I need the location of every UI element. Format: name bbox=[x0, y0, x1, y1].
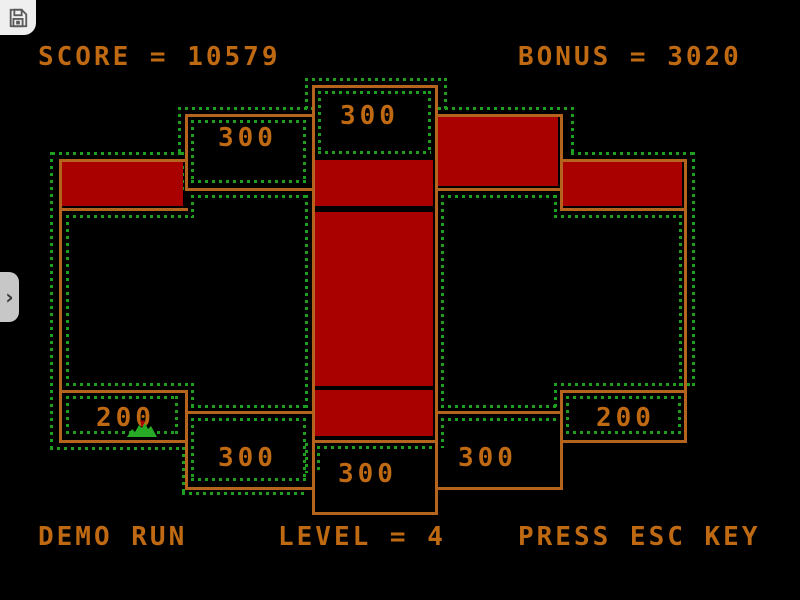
piston-block bbox=[62, 162, 183, 206]
wall-segment bbox=[684, 159, 687, 443]
trail-dotted-line bbox=[571, 152, 695, 155]
wall-segment bbox=[560, 390, 687, 393]
press-esc-text: PRESS ESC KEY bbox=[518, 524, 761, 550]
trail-dotted-line bbox=[566, 396, 678, 399]
trail-dotted-line bbox=[191, 478, 306, 481]
trail-dotted-line bbox=[566, 396, 569, 434]
trail-dotted-line bbox=[191, 383, 194, 408]
wall-segment bbox=[185, 411, 315, 414]
wall-segment bbox=[185, 114, 188, 191]
wall-segment bbox=[560, 440, 687, 443]
chamber-value-label: 300 bbox=[340, 104, 399, 128]
trail-dotted-line bbox=[50, 152, 53, 450]
game-screen: SCORE = 10579 BONUS = 3020 300 300 200 3… bbox=[0, 0, 800, 600]
chamber-value-label: 300 bbox=[458, 446, 517, 470]
trail-dotted-line bbox=[317, 446, 433, 449]
trail-dotted-line bbox=[191, 195, 308, 198]
wall-segment bbox=[435, 487, 563, 490]
wall-segment bbox=[560, 208, 687, 211]
trail-dotted-line bbox=[318, 91, 321, 154]
piston-block bbox=[438, 117, 558, 186]
trail-dotted-line bbox=[191, 180, 306, 183]
trail-dotted-line bbox=[554, 215, 682, 218]
game-board: 300 300 200 300 300 300 200 bbox=[0, 0, 800, 600]
trail-dotted-line bbox=[692, 152, 695, 388]
wall-segment bbox=[59, 390, 188, 393]
trail-dotted-line bbox=[191, 405, 308, 408]
wall-segment bbox=[435, 188, 563, 191]
trail-dotted-line bbox=[317, 446, 320, 472]
floppy-disk-icon bbox=[7, 7, 29, 29]
trail-dotted-line bbox=[679, 215, 682, 386]
trail-dotted-line bbox=[52, 152, 181, 155]
trail-dotted-line bbox=[678, 396, 681, 434]
trail-dotted-line bbox=[441, 418, 556, 421]
trail-dotted-line bbox=[303, 418, 306, 481]
trail-dotted-line bbox=[571, 107, 574, 155]
trail-dotted-line bbox=[441, 418, 444, 448]
piston-block bbox=[315, 390, 433, 436]
demo-run-text: DEMO RUN bbox=[38, 524, 187, 550]
trail-dotted-line bbox=[50, 447, 183, 450]
player-sprite bbox=[127, 420, 157, 438]
wall-segment bbox=[435, 411, 563, 414]
trail-dotted-line bbox=[182, 492, 308, 495]
trail-dotted-line bbox=[305, 195, 308, 408]
trail-dotted-line bbox=[428, 91, 431, 154]
bonus-display: BONUS = 3020 bbox=[518, 44, 742, 70]
piston-block bbox=[563, 162, 682, 206]
wall-segment bbox=[59, 208, 188, 211]
chevron-right-icon: › bbox=[5, 285, 13, 309]
save-button[interactable] bbox=[0, 0, 36, 35]
trail-dotted-line bbox=[66, 215, 69, 386]
trail-dotted-line bbox=[66, 215, 194, 218]
wall-segment bbox=[312, 512, 438, 515]
piston-block bbox=[315, 212, 433, 386]
wall-segment bbox=[185, 487, 315, 490]
trail-dotted-line bbox=[441, 195, 558, 198]
trail-dotted-line bbox=[178, 107, 181, 155]
sidebar-expand-tab[interactable]: › bbox=[0, 272, 19, 322]
wall-segment bbox=[185, 114, 315, 117]
trail-dotted-line bbox=[178, 107, 315, 110]
trail-dotted-line bbox=[66, 396, 178, 399]
trail-dotted-line bbox=[175, 396, 178, 434]
trail-dotted-line bbox=[554, 383, 695, 386]
trail-dotted-line bbox=[441, 195, 444, 408]
trail-dotted-line bbox=[191, 418, 194, 481]
trail-dotted-line bbox=[66, 396, 69, 434]
wall-segment bbox=[312, 85, 438, 88]
piston-block bbox=[315, 160, 433, 206]
chamber-value-label: 300 bbox=[218, 446, 277, 470]
trail-dotted-line bbox=[318, 91, 431, 94]
trail-dotted-line bbox=[318, 151, 431, 154]
trail-dotted-line bbox=[191, 418, 306, 421]
trail-dotted-line bbox=[441, 405, 558, 408]
chamber-value-label: 300 bbox=[338, 462, 397, 486]
trail-dotted-line bbox=[444, 78, 447, 110]
trail-dotted-line bbox=[66, 383, 194, 386]
score-display: SCORE = 10579 bbox=[38, 44, 281, 70]
trail-dotted-line bbox=[438, 107, 575, 110]
wall-segment bbox=[59, 440, 188, 443]
wall-segment bbox=[312, 440, 438, 443]
trail-dotted-line bbox=[303, 120, 306, 183]
chamber-value-label: 300 bbox=[218, 126, 277, 150]
trail-dotted-line bbox=[305, 78, 447, 81]
trail-dotted-line bbox=[305, 78, 308, 110]
level-display: LEVEL = 4 bbox=[278, 524, 446, 550]
trail-dotted-line bbox=[191, 195, 194, 218]
chamber-value-label: 200 bbox=[596, 406, 655, 430]
wall-segment bbox=[185, 188, 315, 191]
trail-dotted-line bbox=[191, 120, 194, 183]
